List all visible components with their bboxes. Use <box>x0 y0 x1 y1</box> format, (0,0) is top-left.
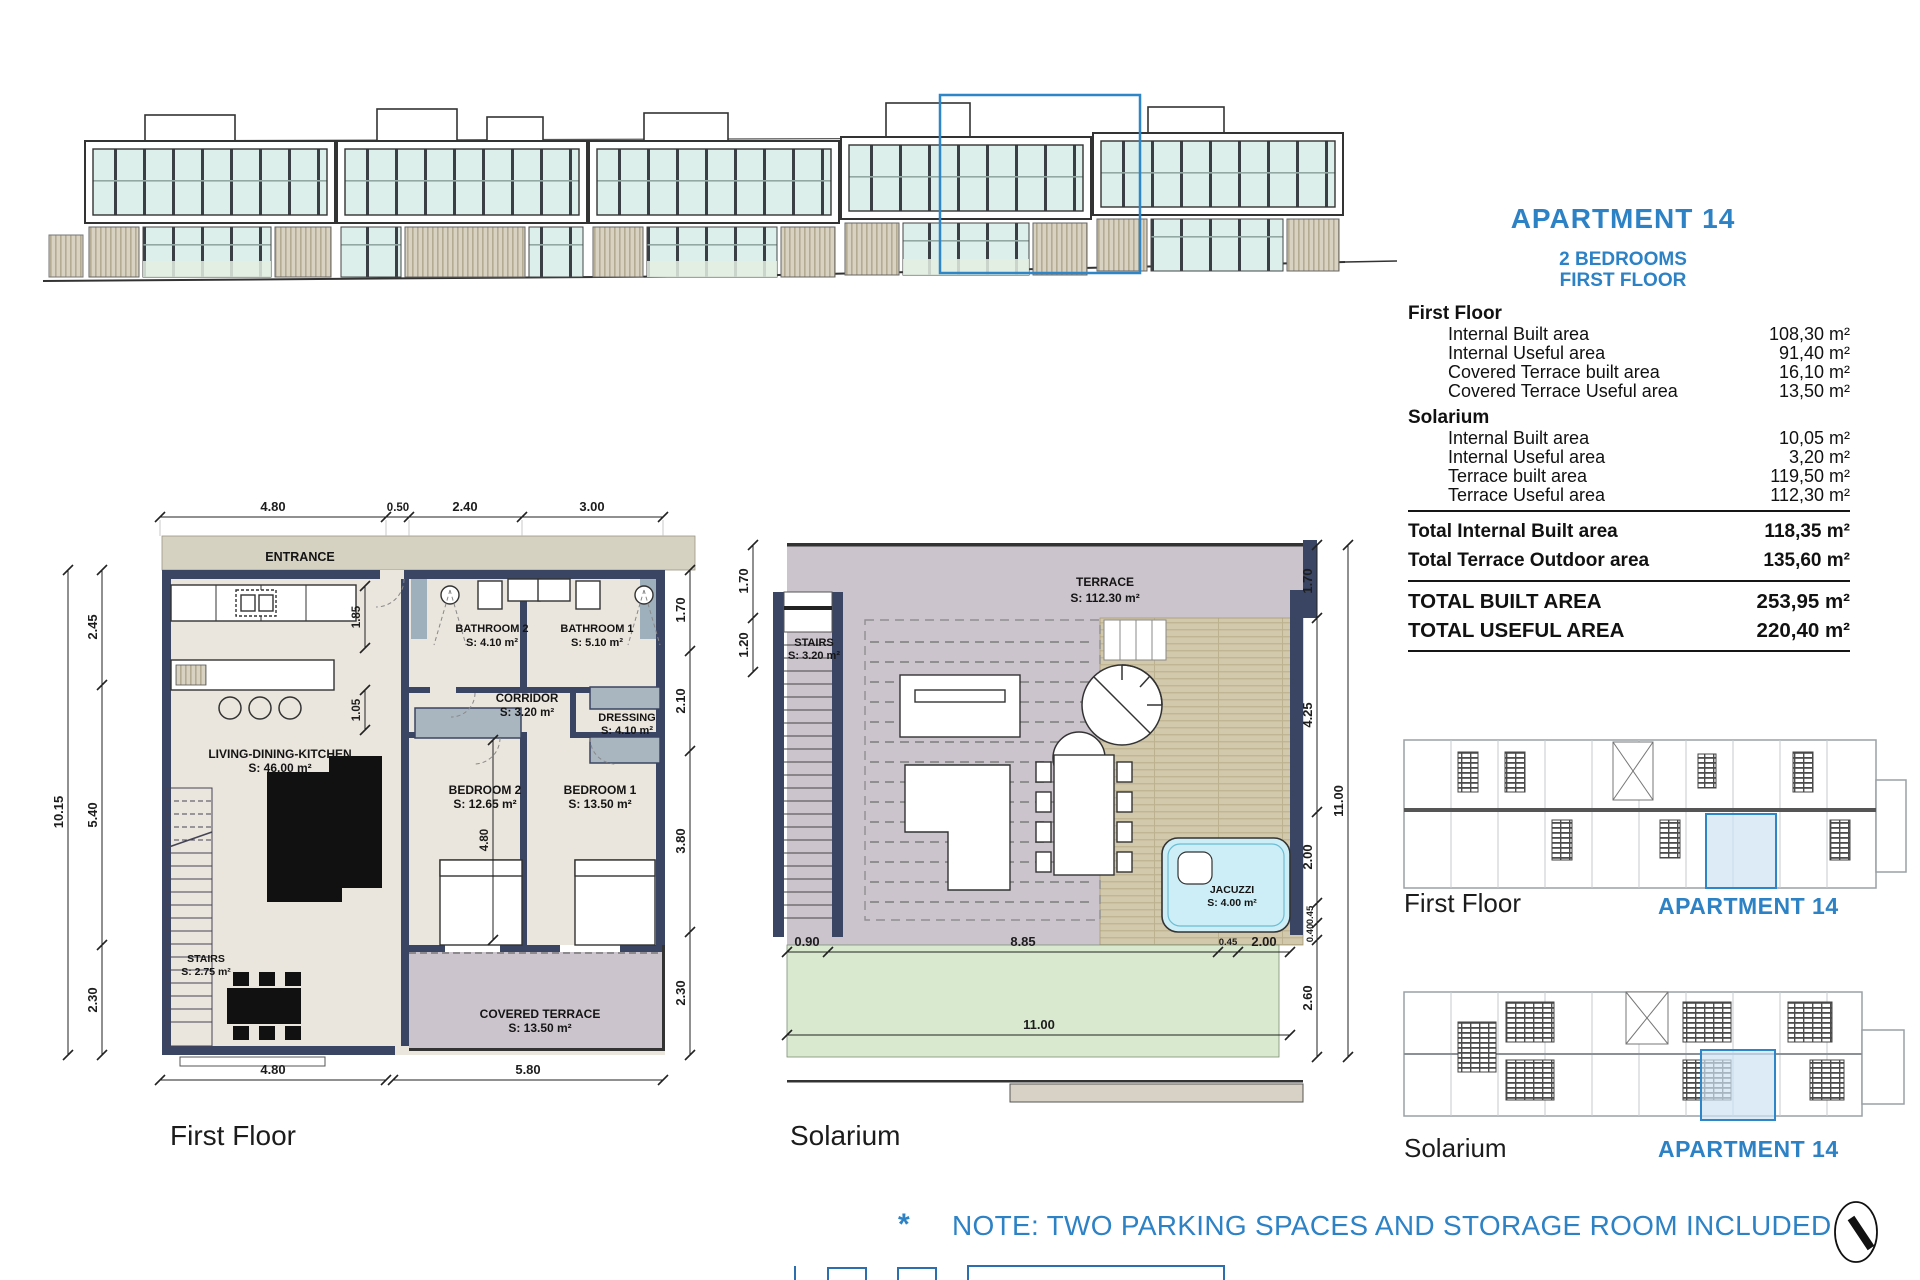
note-asterisk: * <box>898 1208 910 1242</box>
table-row: Internal Built area108,30 m² <box>1408 325 1850 344</box>
row-label: Total Terrace Outdoor area <box>1408 546 1649 575</box>
table-subtotal-row: Total Internal Built area118,35 m² <box>1408 517 1850 546</box>
row-value: 3,20 m² <box>1789 448 1850 467</box>
row-value: 135,60 m² <box>1763 546 1850 575</box>
row-value: 118,35 m² <box>1764 517 1850 546</box>
svg-text:0.40: 0.40 <box>1305 924 1316 943</box>
row-value: 112,30 m² <box>1770 486 1850 505</box>
svg-text:11.00: 11.00 <box>1023 1017 1055 1032</box>
deck-inset <box>1104 620 1166 660</box>
svg-text:2.30: 2.30 <box>673 980 688 1005</box>
row-label: Terrace built area <box>1448 467 1587 486</box>
row-value: 253,95 m² <box>1757 587 1850 616</box>
wall-deck-right <box>1290 590 1303 935</box>
first-floor-plan-drawing: ENTRANCE LIVING-DINING-KITCHEN S: 46.00 … <box>30 440 750 1100</box>
key-plan-caption: Solarium <box>1404 1133 1507 1164</box>
page-subtitle-floor: FIRST FLOOR <box>1448 270 1798 291</box>
table-row: Terrace Useful area112,30 m² <box>1408 486 1850 505</box>
svg-text:10.15: 10.15 <box>51 796 66 829</box>
svg-text:1.05: 1.05 <box>351 698 363 721</box>
elevation-module-3 <box>589 113 839 277</box>
table-divider <box>1408 580 1850 582</box>
row-value: 220,40 m² <box>1757 616 1850 645</box>
room-area: S: 46.00 m² <box>248 761 311 775</box>
room-area: S: 13.50 m² <box>568 797 631 811</box>
svg-text:0.50: 0.50 <box>387 502 409 514</box>
outdoor-table-inset <box>915 690 1005 702</box>
svg-text:0.45: 0.45 <box>1305 905 1316 924</box>
key-plan-apartment-label: APARTMENT 14 <box>1658 1136 1839 1163</box>
table-total-row: TOTAL USEFUL AREA220,40 m² <box>1408 616 1850 645</box>
table-divider <box>1408 650 1850 652</box>
row-label: Internal Useful area <box>1448 448 1605 467</box>
row-label: TOTAL USEFUL AREA <box>1408 616 1624 645</box>
row-label: Internal Built area <box>1448 429 1589 448</box>
north-compass-icon <box>1826 1198 1898 1276</box>
room-label: STAIRS <box>794 637 834 649</box>
row-label: TOTAL BUILT AREA <box>1408 587 1602 616</box>
svg-text:4.80: 4.80 <box>260 1062 285 1077</box>
svg-text:1.70: 1.70 <box>1300 568 1315 593</box>
elevation-module-4 <box>841 103 1091 275</box>
room-area: S: 13.50 m² <box>508 1021 571 1035</box>
apartment-14-keyplan-highlight <box>1701 1050 1775 1120</box>
room-area: S: 3.20 m² <box>788 650 840 662</box>
svg-text:3.00: 3.00 <box>579 499 604 514</box>
row-value: 91,40 m² <box>1779 344 1850 363</box>
room-area: S: 12.65 m² <box>453 797 516 811</box>
key-plan-first-floor <box>1398 722 1918 897</box>
table-row: Terrace built area119,50 m² <box>1408 467 1850 486</box>
dining-table <box>227 972 301 1040</box>
room-label: BEDROOM 2 <box>449 783 522 797</box>
room-label: BEDROOM 1 <box>564 783 637 797</box>
svg-text:2.60: 2.60 <box>1300 985 1315 1010</box>
svg-text:1.20: 1.20 <box>736 632 751 657</box>
room-area: S: 4.10 m² <box>466 637 518 649</box>
svg-text:5.80: 5.80 <box>515 1062 540 1077</box>
table-divider <box>1408 510 1850 512</box>
sofa <box>267 756 382 902</box>
table-section-header: First Floor <box>1408 303 1850 325</box>
svg-text:2.40: 2.40 <box>452 499 477 514</box>
entrance-band <box>162 536 695 570</box>
area-table: First Floor Internal Built area108,30 m²… <box>1408 303 1850 657</box>
room-label: BATHROOM 1 <box>560 623 633 635</box>
room-label: STAIRS <box>187 953 225 965</box>
entrance-label: ENTRANCE <box>265 550 334 564</box>
svg-text:3.80: 3.80 <box>673 828 688 853</box>
table-total-row: TOTAL BUILT AREA253,95 m² <box>1408 587 1850 616</box>
svg-text:4.80: 4.80 <box>260 499 285 514</box>
key-plan-solarium <box>1398 982 1918 1132</box>
table-row: Covered Terrace Useful area13,50 m² <box>1408 382 1850 401</box>
svg-text:11.00: 11.00 <box>1331 785 1346 817</box>
key-plan-caption: First Floor <box>1404 888 1521 919</box>
elevation-module-2 <box>337 109 587 277</box>
room-label: TERRACE <box>1076 575 1134 589</box>
room-area: S: 4.10 m² <box>601 725 653 737</box>
elevation-module-1 <box>85 115 335 277</box>
row-label: Terrace Useful area <box>1448 486 1605 505</box>
bed-bedroom1 <box>575 860 655 945</box>
row-value: 13,50 m² <box>1779 382 1850 401</box>
svg-text:2.00: 2.00 <box>1300 844 1315 869</box>
row-value: 16,10 m² <box>1779 363 1850 382</box>
wardrobe-dressing-top <box>590 687 660 709</box>
room-area: S: 3.20 m² <box>500 707 554 719</box>
room-area: S: 4.00 m² <box>1207 897 1257 909</box>
row-value: 119,50 m² <box>1770 467 1850 486</box>
table-row: Internal Built area10,05 m² <box>1408 429 1850 448</box>
lower-slab <box>1010 1084 1303 1102</box>
svg-text:1.70: 1.70 <box>673 597 688 622</box>
solarium-plan-drawing: TERRACE S: 112.30 m² STAIRS S: 3.20 m² J… <box>735 440 1380 1110</box>
svg-text:4.25: 4.25 <box>1300 702 1315 727</box>
outdoor-table <box>900 675 1020 737</box>
row-value: 10,05 m² <box>1779 429 1850 448</box>
row-label: Internal Built area <box>1448 325 1589 344</box>
solarium-caption: Solarium <box>790 1120 900 1152</box>
elevation-planter <box>49 235 83 277</box>
elevation-module-5 <box>1093 107 1343 271</box>
svg-text:0.90: 0.90 <box>794 934 819 949</box>
row-label: Total Internal Built area <box>1408 517 1618 546</box>
row-label: Covered Terrace built area <box>1448 363 1660 382</box>
room-label: LIVING-DINING-KITCHEN <box>208 747 351 761</box>
page-title: APARTMENT 14 <box>1448 203 1798 235</box>
first-floor-caption: First Floor <box>170 1120 296 1152</box>
shower-wall <box>411 579 427 639</box>
svg-text:8.85: 8.85 <box>1010 934 1035 949</box>
row-label: Covered Terrace Useful area <box>1448 382 1678 401</box>
row-label: Internal Useful area <box>1448 344 1605 363</box>
table-row: Internal Useful area3,20 m² <box>1408 448 1850 467</box>
svg-text:2.30: 2.30 <box>85 987 100 1012</box>
table-subtotal-row: Total Terrace Outdoor area135,60 m² <box>1408 546 1850 575</box>
room-label: BATHROOM 2 <box>455 623 528 635</box>
apartment-14-keyplan-highlight <box>1706 814 1776 888</box>
room-label: JACUZZI <box>1210 884 1254 896</box>
table-row: Internal Useful area91,40 m² <box>1408 344 1850 363</box>
svg-text:0.45: 0.45 <box>1219 937 1238 948</box>
room-area: S: 2.75 m² <box>181 966 231 978</box>
lawn-strip <box>787 945 1279 1057</box>
building-elevation-drawing <box>35 85 1405 300</box>
table-row: Covered Terrace built area16,10 m² <box>1408 363 1850 382</box>
title-block: APARTMENT 14 2 BEDROOMS FIRST FLOOR <box>1448 203 1798 291</box>
svg-text:1.70: 1.70 <box>736 568 751 593</box>
room-label: DRESSING <box>598 712 655 724</box>
svg-text:1.85: 1.85 <box>351 605 363 628</box>
svg-text:4.80: 4.80 <box>479 829 491 851</box>
svg-text:2.45: 2.45 <box>85 614 100 639</box>
page-subtitle-bedrooms: 2 BEDROOMS <box>1448 249 1798 270</box>
table-section-header: Solarium <box>1408 407 1850 429</box>
bottom-legend-strip <box>778 1260 1258 1280</box>
plan-sheet: { "header": { "title": "APARTMENT 14", "… <box>0 0 1920 1280</box>
svg-text:2.10: 2.10 <box>673 688 688 713</box>
room-area: S: 112.30 m² <box>1070 591 1139 605</box>
svg-text:5.40: 5.40 <box>85 802 100 827</box>
svg-text:2.00: 2.00 <box>1251 934 1276 949</box>
row-value: 108,30 m² <box>1769 325 1850 344</box>
room-label: CORRIDOR <box>496 693 559 705</box>
room-area: S: 5.10 m² <box>571 637 623 649</box>
room-label: COVERED TERRACE <box>480 1007 601 1021</box>
bed-bedroom2 <box>440 860 522 945</box>
note-text: NOTE: TWO PARKING SPACES AND STORAGE ROO… <box>952 1210 1832 1242</box>
key-plan-apartment-label: APARTMENT 14 <box>1658 893 1839 920</box>
